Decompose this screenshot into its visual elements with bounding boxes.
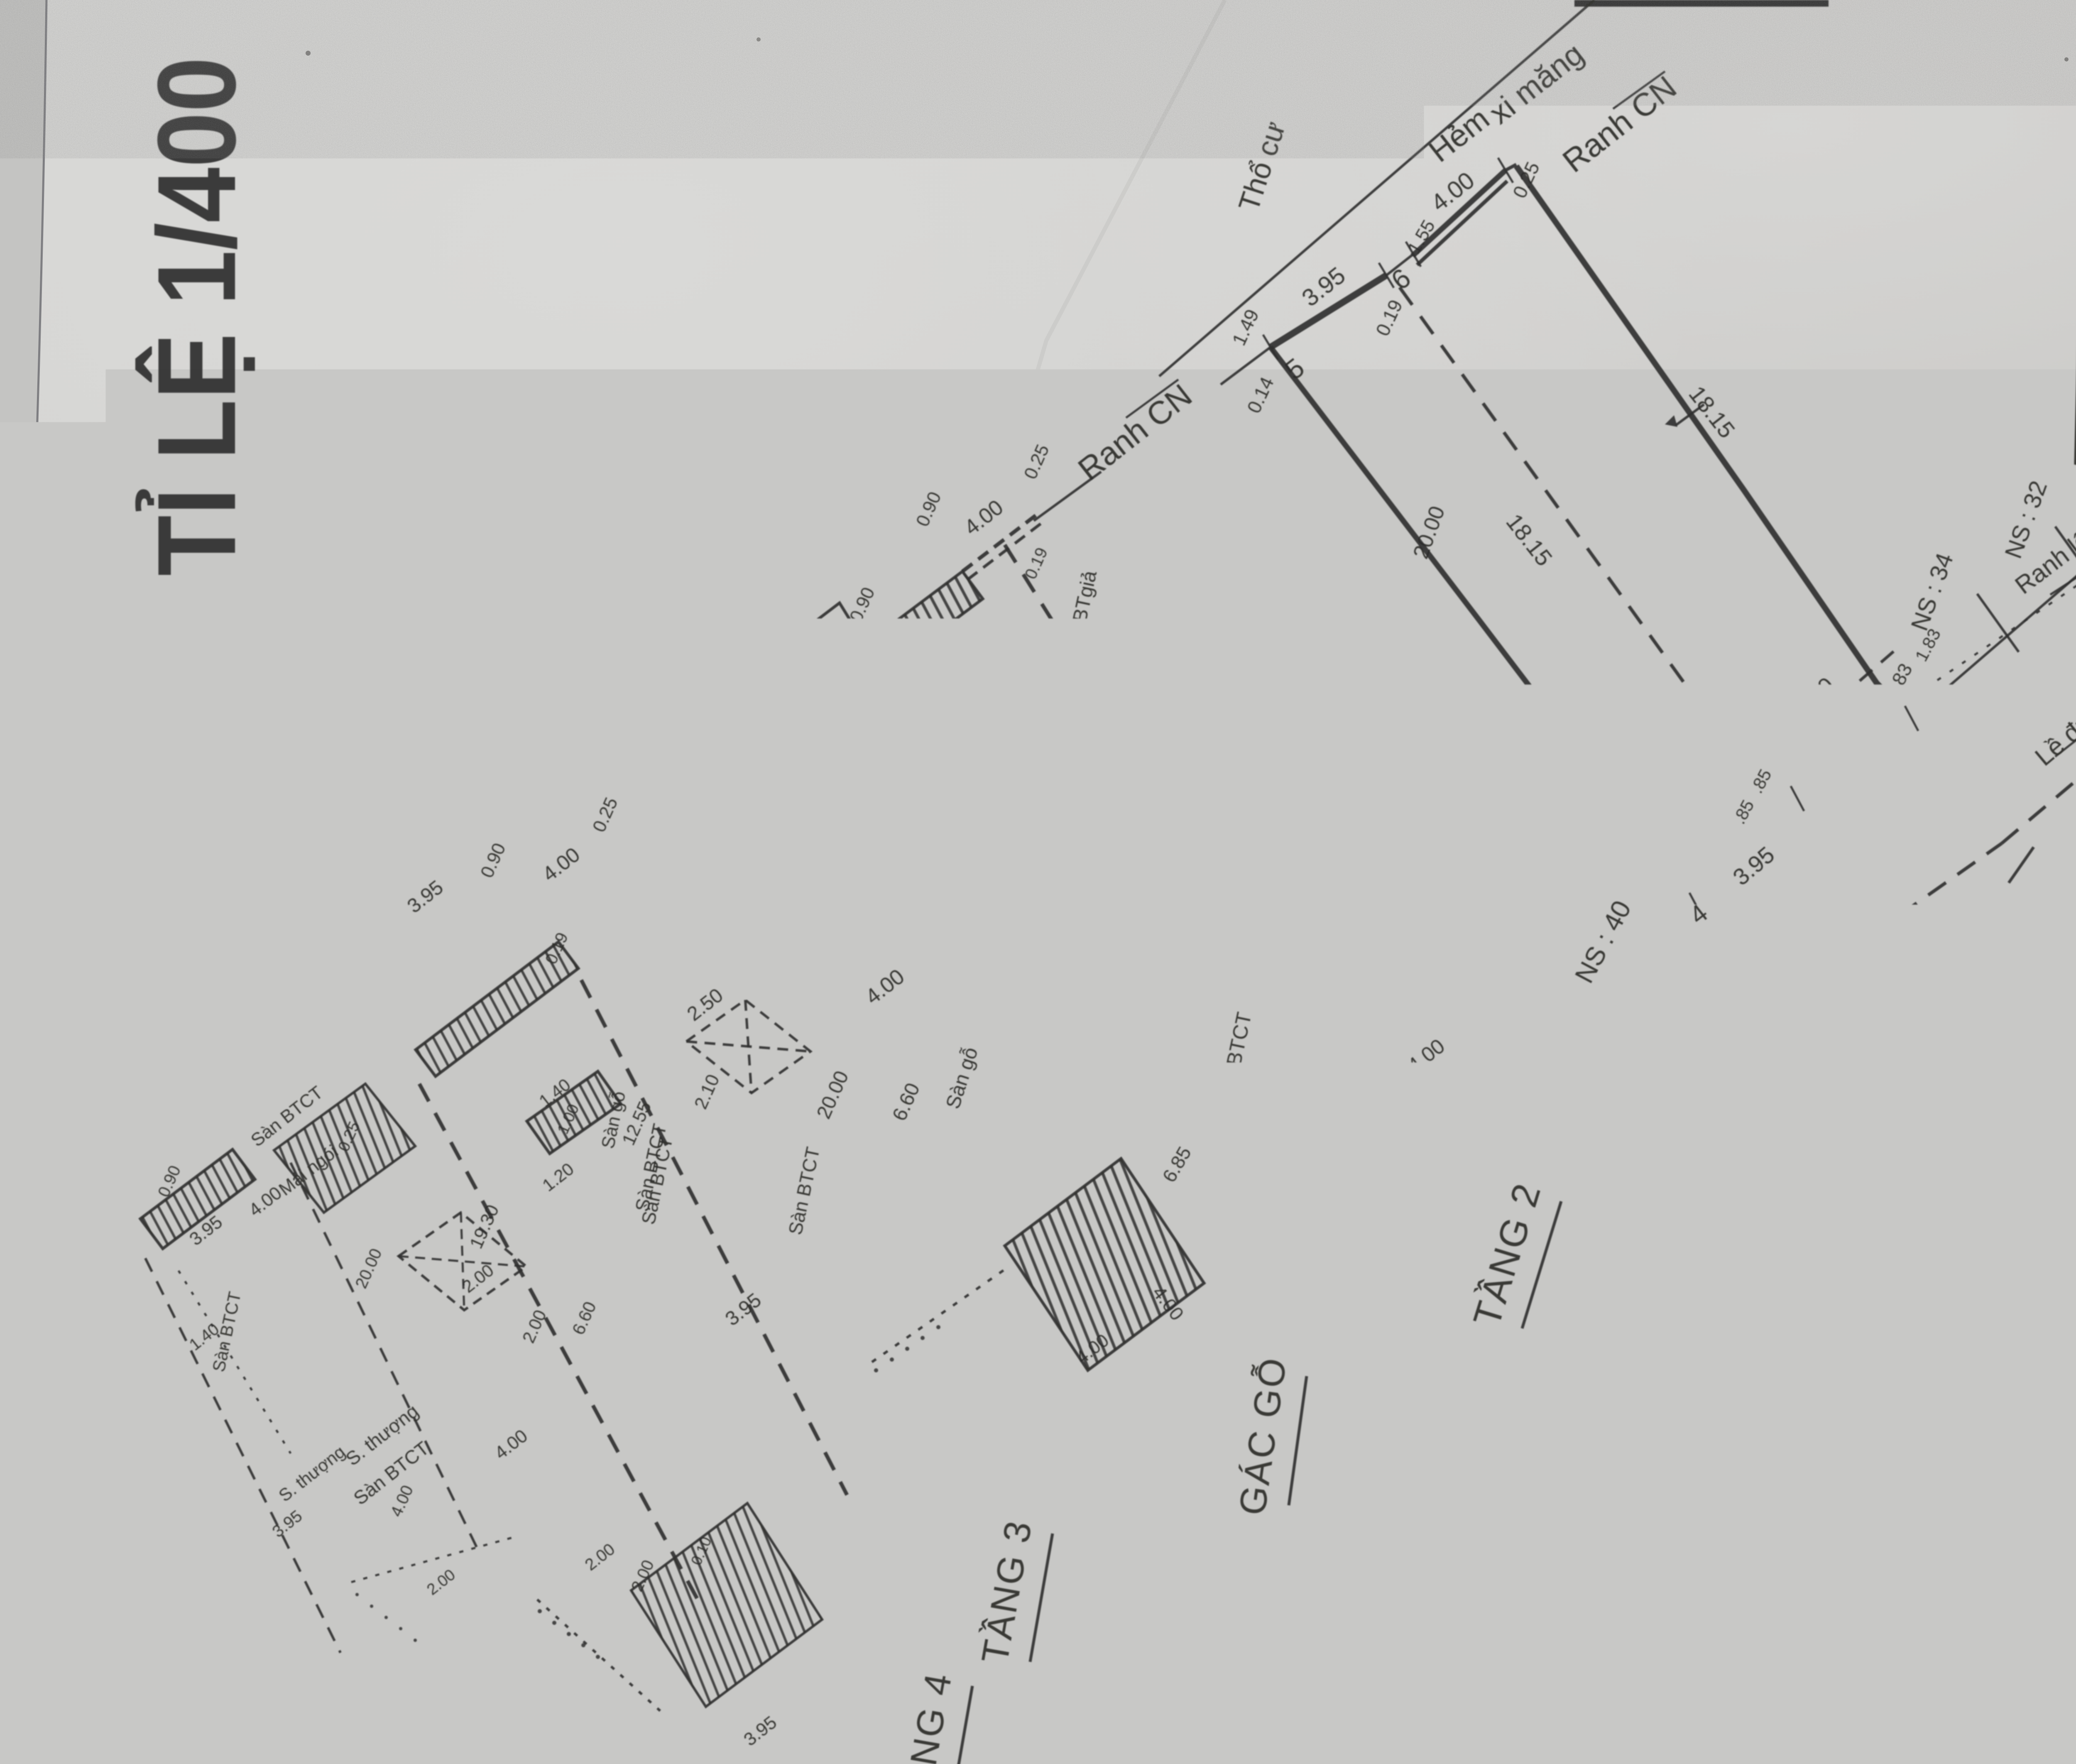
svg-text:bannhadep.com: bannhadep.com	[1900, 1698, 2076, 1753]
svg-text:bannhadep.com: bannhadep.com	[1065, 853, 1288, 893]
